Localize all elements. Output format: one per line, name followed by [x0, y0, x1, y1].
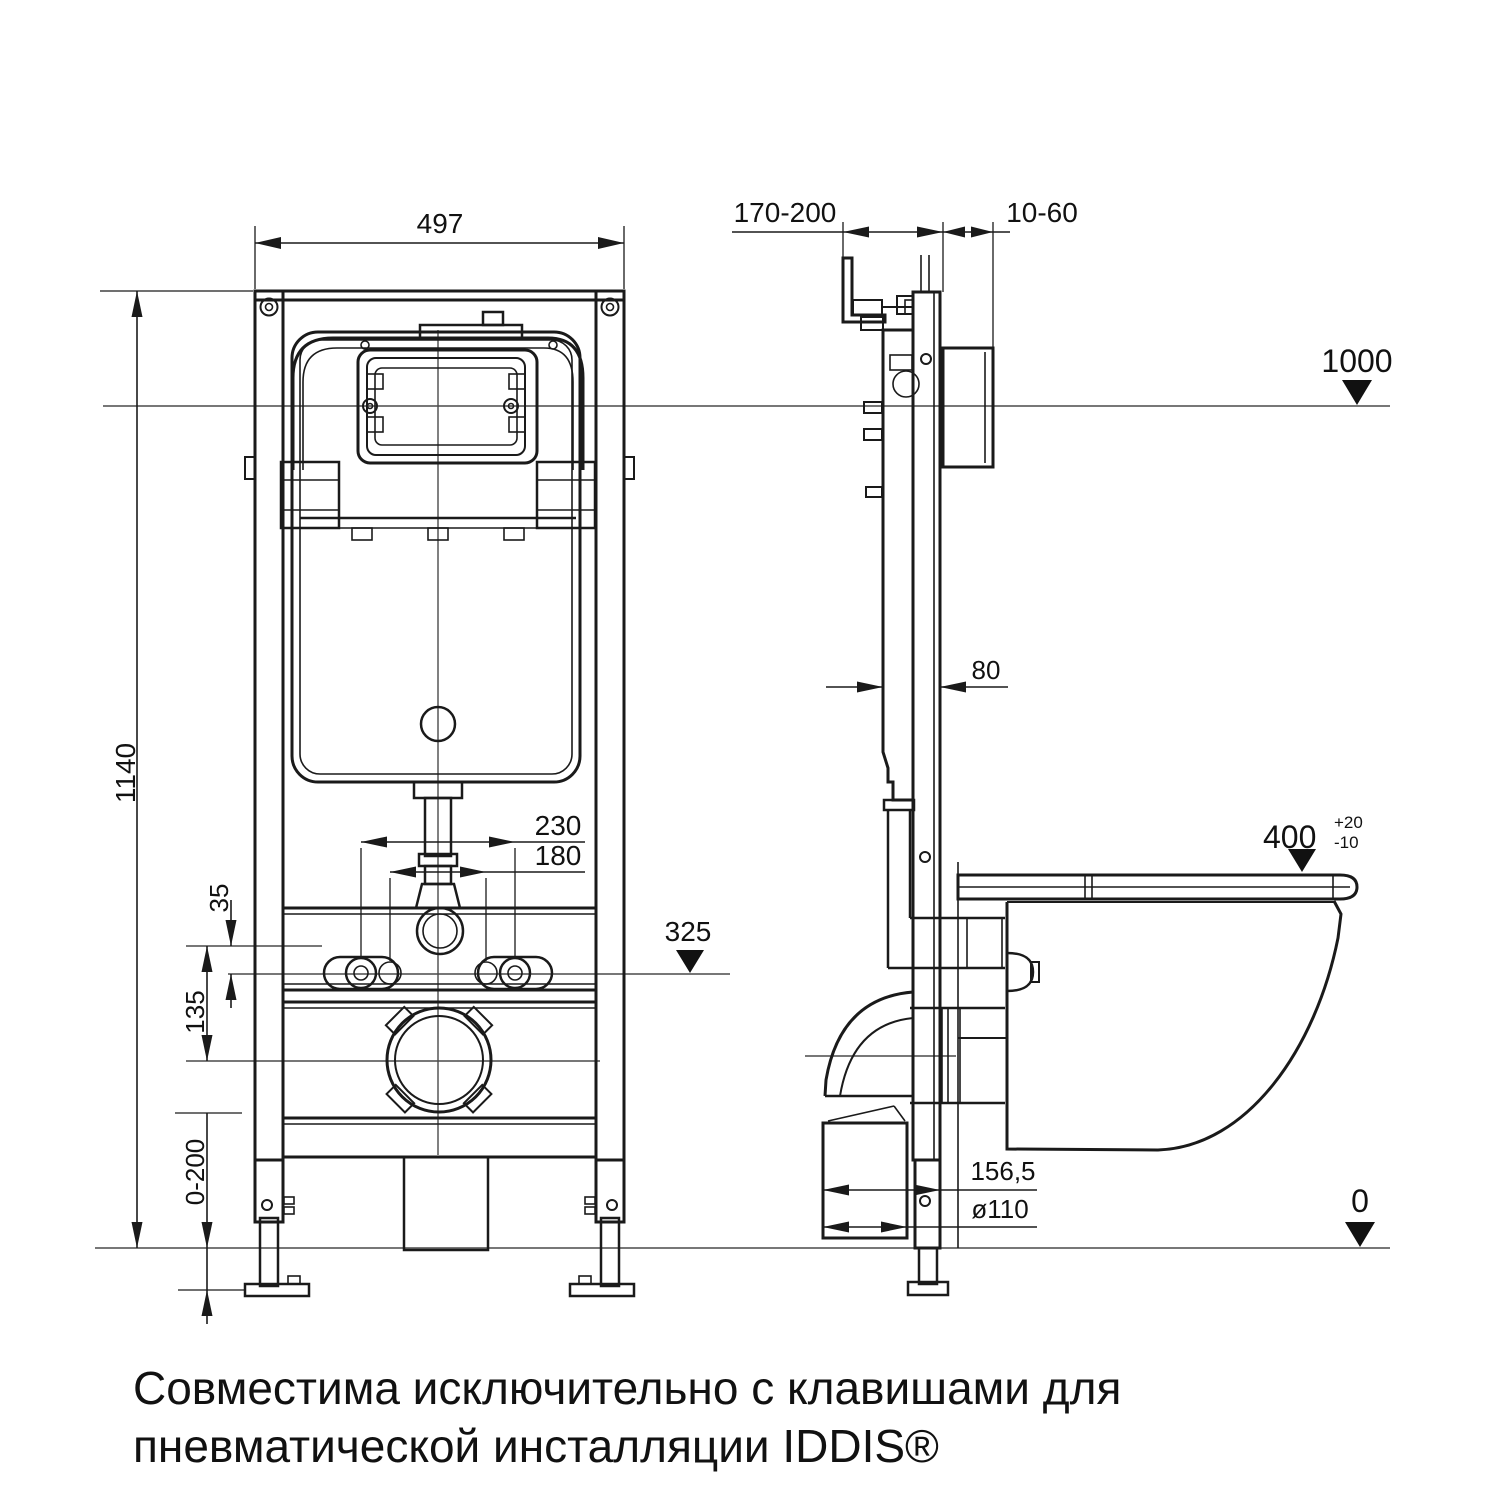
- drain-socket-inner: [395, 1016, 483, 1104]
- bracket-top-tab: [483, 312, 503, 325]
- right-leg: [570, 1160, 634, 1296]
- drain-socket: [387, 1008, 491, 1112]
- arrowhead-icon: [823, 1185, 849, 1196]
- reference-lines: [95, 330, 1390, 1248]
- arrowhead-icon: [226, 974, 237, 1000]
- float-valve: [893, 371, 919, 397]
- leg-clamp: [585, 1197, 595, 1204]
- anchor-plate: [283, 908, 596, 990]
- leg-clamp: [585, 1207, 595, 1214]
- anchor-bolt-right: [508, 966, 522, 980]
- side-view: [823, 255, 1357, 1295]
- technical-drawing-canvas: 497 1140 230 180 35 135 0-200 170-200 10…: [0, 0, 1500, 1500]
- arrowhead-icon: [914, 1185, 940, 1196]
- front-view: [245, 291, 634, 1296]
- toilet-bowl: [1007, 901, 1341, 1150]
- level-label-0: 0: [1351, 1183, 1369, 1219]
- flush-inlet-cone: [1007, 953, 1033, 991]
- cistern-tank-inner: [300, 340, 572, 774]
- arrowhead-icon: [132, 291, 143, 317]
- dimensions: 497 1140 230 180 35 135 0-200 170-200 10…: [100, 197, 1078, 1324]
- arrowhead-icon: [202, 946, 213, 972]
- arrowhead-icon: [881, 1222, 907, 1233]
- level-label-400: 400: [1263, 819, 1316, 855]
- arrowhead-icon: [489, 837, 515, 848]
- dim-label-leg-adjust: 0-200: [180, 1139, 210, 1206]
- pushrod-hole-icon: [921, 354, 931, 364]
- leg-hole-icon: [262, 1200, 272, 1210]
- inlet-hole-inner: [423, 914, 457, 948]
- valve-body: [890, 355, 912, 370]
- rail-hole-icon: [920, 852, 930, 862]
- arrowhead-icon: [598, 237, 624, 249]
- installation-frame-drawing: 497 1140 230 180 35 135 0-200 170-200 10…: [0, 0, 1500, 1500]
- caption: Совместима исключительно с клавишами для…: [133, 1362, 1121, 1472]
- arrowhead-icon: [202, 1035, 213, 1061]
- leg-tube: [255, 1160, 283, 1222]
- tank-side-profile: [883, 330, 913, 800]
- dim-label-offset-small: 35: [204, 884, 234, 913]
- bracket-foot-tab: [504, 528, 524, 540]
- bend-inner: [840, 1018, 913, 1096]
- arrowhead-icon: [226, 920, 237, 946]
- drain-clamp-tab: [465, 1007, 493, 1035]
- arrowhead-icon: [943, 227, 965, 238]
- dim-label-outlet-diameter: ø110: [971, 1194, 1028, 1224]
- inlet-hole: [417, 908, 463, 954]
- corner-screw-icon: [266, 304, 273, 311]
- frame-left-rail: [255, 291, 283, 1160]
- leg-foot: [260, 1218, 278, 1286]
- frame-top-crossbar: [255, 291, 624, 300]
- arrowhead-icon: [843, 227, 869, 238]
- wall-bracket-bolt: [853, 300, 882, 315]
- caption-line-2: пневматической инсталляции IDDIS®: [133, 1420, 939, 1472]
- arrowhead-icon: [132, 1222, 143, 1248]
- wall-bracket: [843, 258, 885, 322]
- arrowhead-icon: [971, 227, 993, 238]
- bend-chamfer: [894, 1106, 905, 1121]
- bracket-screw-icon: [549, 341, 557, 349]
- arrowhead-icon: [917, 227, 943, 238]
- level-marker-1000-icon: [1342, 380, 1372, 405]
- rear-stub: [866, 487, 882, 497]
- dim-label-outlet-distance: 156,5: [970, 1156, 1035, 1186]
- drain-clamp-tab: [387, 1085, 415, 1113]
- dim-label-frame-height: 1140: [110, 743, 141, 803]
- corner-screw-icon: [607, 304, 614, 311]
- leg-clamp: [284, 1197, 294, 1204]
- caption-line-1: Совместима исключительно с клавишами для: [133, 1362, 1121, 1414]
- bend-outer: [825, 992, 913, 1096]
- dim-label-cistern-depth: 80: [972, 655, 1001, 685]
- bracket-foot-tab: [352, 528, 372, 540]
- bend-chamfer: [828, 1106, 894, 1121]
- anchor-bolt-left: [354, 966, 368, 980]
- side-leg-tube: [915, 1160, 940, 1248]
- level-markers: 1000 400 +20 -10 325 0: [665, 343, 1393, 1247]
- level-label-1000: 1000: [1321, 343, 1392, 379]
- leg-clamp: [284, 1207, 294, 1214]
- level-marker-325-icon: [676, 950, 704, 973]
- arrowhead-icon: [361, 837, 387, 848]
- dim-label-frame-width: 497: [417, 208, 464, 239]
- leg-hole-icon: [607, 1200, 617, 1210]
- level-marker-0-icon: [1345, 1222, 1375, 1247]
- arrowhead-icon: [823, 1222, 849, 1233]
- outlet-box: [404, 1157, 488, 1250]
- arrowhead-icon: [255, 237, 281, 249]
- level-label-325: 325: [665, 916, 712, 947]
- rear-stub: [864, 402, 882, 413]
- arrowhead-icon: [202, 1290, 213, 1316]
- dim-label-drain-offset: 135: [180, 990, 210, 1033]
- drain-plate: [283, 1002, 596, 1112]
- leg-tube: [596, 1160, 624, 1222]
- left-leg: [245, 1160, 309, 1296]
- side-rail: [913, 292, 940, 1160]
- side-leg-foot: [919, 1248, 937, 1284]
- drain-clamp-tab: [464, 1085, 492, 1113]
- drain-drop-pipe: [823, 1123, 907, 1238]
- arrowhead-icon: [460, 867, 486, 878]
- dim-label-wall-finish: 10-60: [1006, 197, 1078, 228]
- level-label-400-tol-plus: +20: [1334, 813, 1363, 832]
- dim-label-depth-range: 170-200: [734, 197, 837, 228]
- dim-label-anchor-spacing: 230: [535, 810, 582, 841]
- frame-right-rail: [596, 291, 624, 1160]
- arrowhead-icon: [202, 1222, 213, 1248]
- leg-foot: [601, 1218, 619, 1286]
- level-label-400-tol-minus: -10: [1334, 833, 1359, 852]
- arrowhead-icon: [390, 867, 416, 878]
- arrowhead-icon: [940, 682, 966, 693]
- rail-hole-icon: [920, 1196, 930, 1206]
- arrowhead-icon: [857, 682, 883, 693]
- rear-stub: [864, 429, 882, 440]
- dim-label-inner-spacing: 180: [535, 840, 582, 871]
- drain-clamp-tab: [386, 1007, 414, 1035]
